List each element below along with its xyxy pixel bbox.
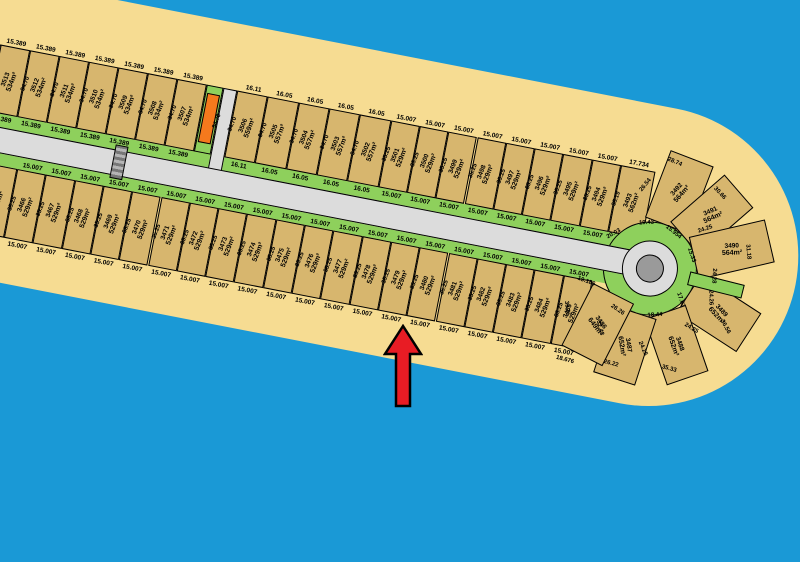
lot-label: 3490 564m² <box>721 242 742 257</box>
lot-label: 3506559m² <box>236 115 256 139</box>
lot-label: 3513534m² <box>0 69 19 93</box>
lot-label: 3502557m² <box>359 139 379 163</box>
lot-label: 3467529m² <box>44 200 64 224</box>
lot-label: 3504557m² <box>298 127 318 151</box>
lot-label: 3512534m² <box>28 75 48 99</box>
lot-label: 3505557m² <box>267 121 287 145</box>
lot-label: 3488 652m² <box>666 333 686 357</box>
lot-label: 3508534m² <box>146 97 166 121</box>
lot-label: 529m² <box>0 190 5 211</box>
dimension-label: 18.44 <box>647 312 662 319</box>
lot-label: 3509534m² <box>117 92 137 116</box>
lot-label: 3503557m² <box>328 133 348 157</box>
dimension-label: 19.43 <box>639 220 654 227</box>
lot-label: 3474529m² <box>245 239 265 263</box>
lot-label: 3492 564m² <box>667 180 691 204</box>
lot-label: 3484529m² <box>533 295 553 319</box>
lot-area: 564m² <box>722 249 742 257</box>
lot-label: 3493562m² <box>621 190 641 214</box>
lot-label: 3487 652m² <box>616 334 633 356</box>
lot-label: 3510534m² <box>87 86 107 110</box>
land-parcel-map: 534m²3513534m²34.7015.38915.3893512534m²… <box>0 0 800 502</box>
lot-label: 3477529m² <box>331 256 351 280</box>
lot-area: 529m² <box>0 190 5 211</box>
dimension-label: 24.26 <box>707 290 713 305</box>
lot-label: 3507534m² <box>176 103 196 127</box>
lot-label: 3511534m² <box>58 80 78 104</box>
pointer-arrow <box>383 324 423 408</box>
lot-label: 3495529m² <box>561 178 581 202</box>
lot-label: 3491 564m² <box>700 204 724 225</box>
plat-map-scene: 534m²3513534m²34.7015.38915.3893512534m²… <box>0 0 800 562</box>
dimension-label: 31.18 <box>744 244 751 259</box>
dimension-label: 24.28 <box>710 268 717 283</box>
